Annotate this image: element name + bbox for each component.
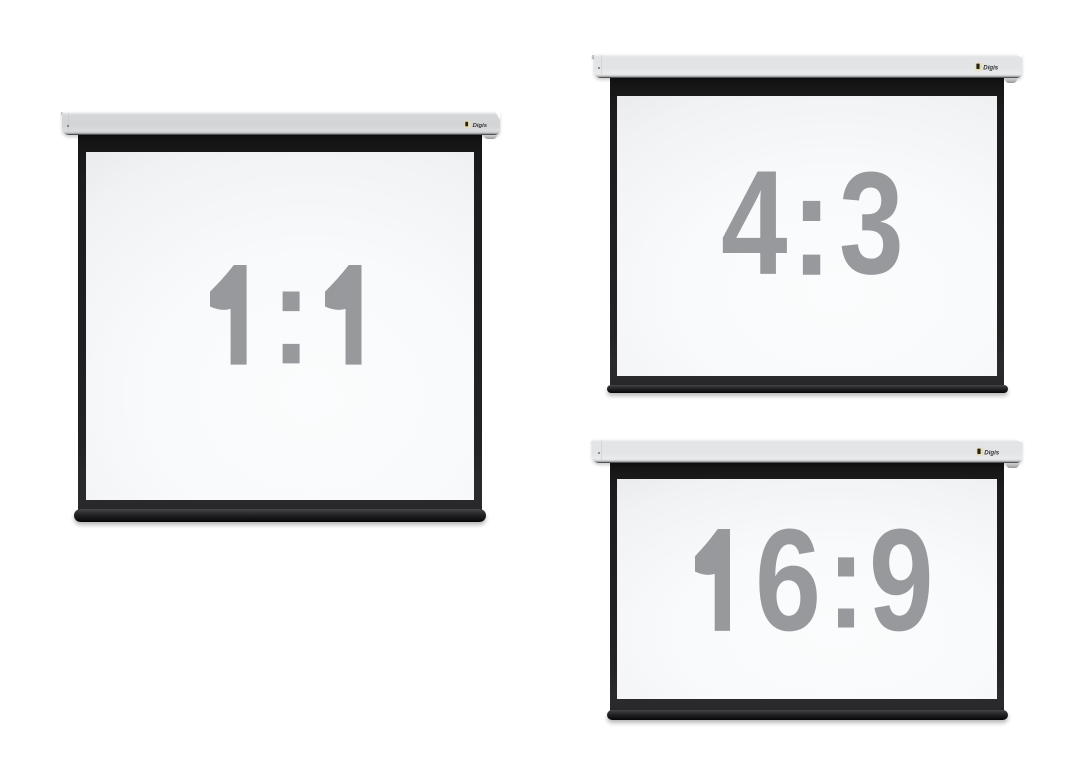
svg-text:Digis: Digis <box>472 122 487 128</box>
svg-text:Digis: Digis <box>983 64 999 71</box>
svg-text:Digis: Digis <box>984 449 1000 456</box>
